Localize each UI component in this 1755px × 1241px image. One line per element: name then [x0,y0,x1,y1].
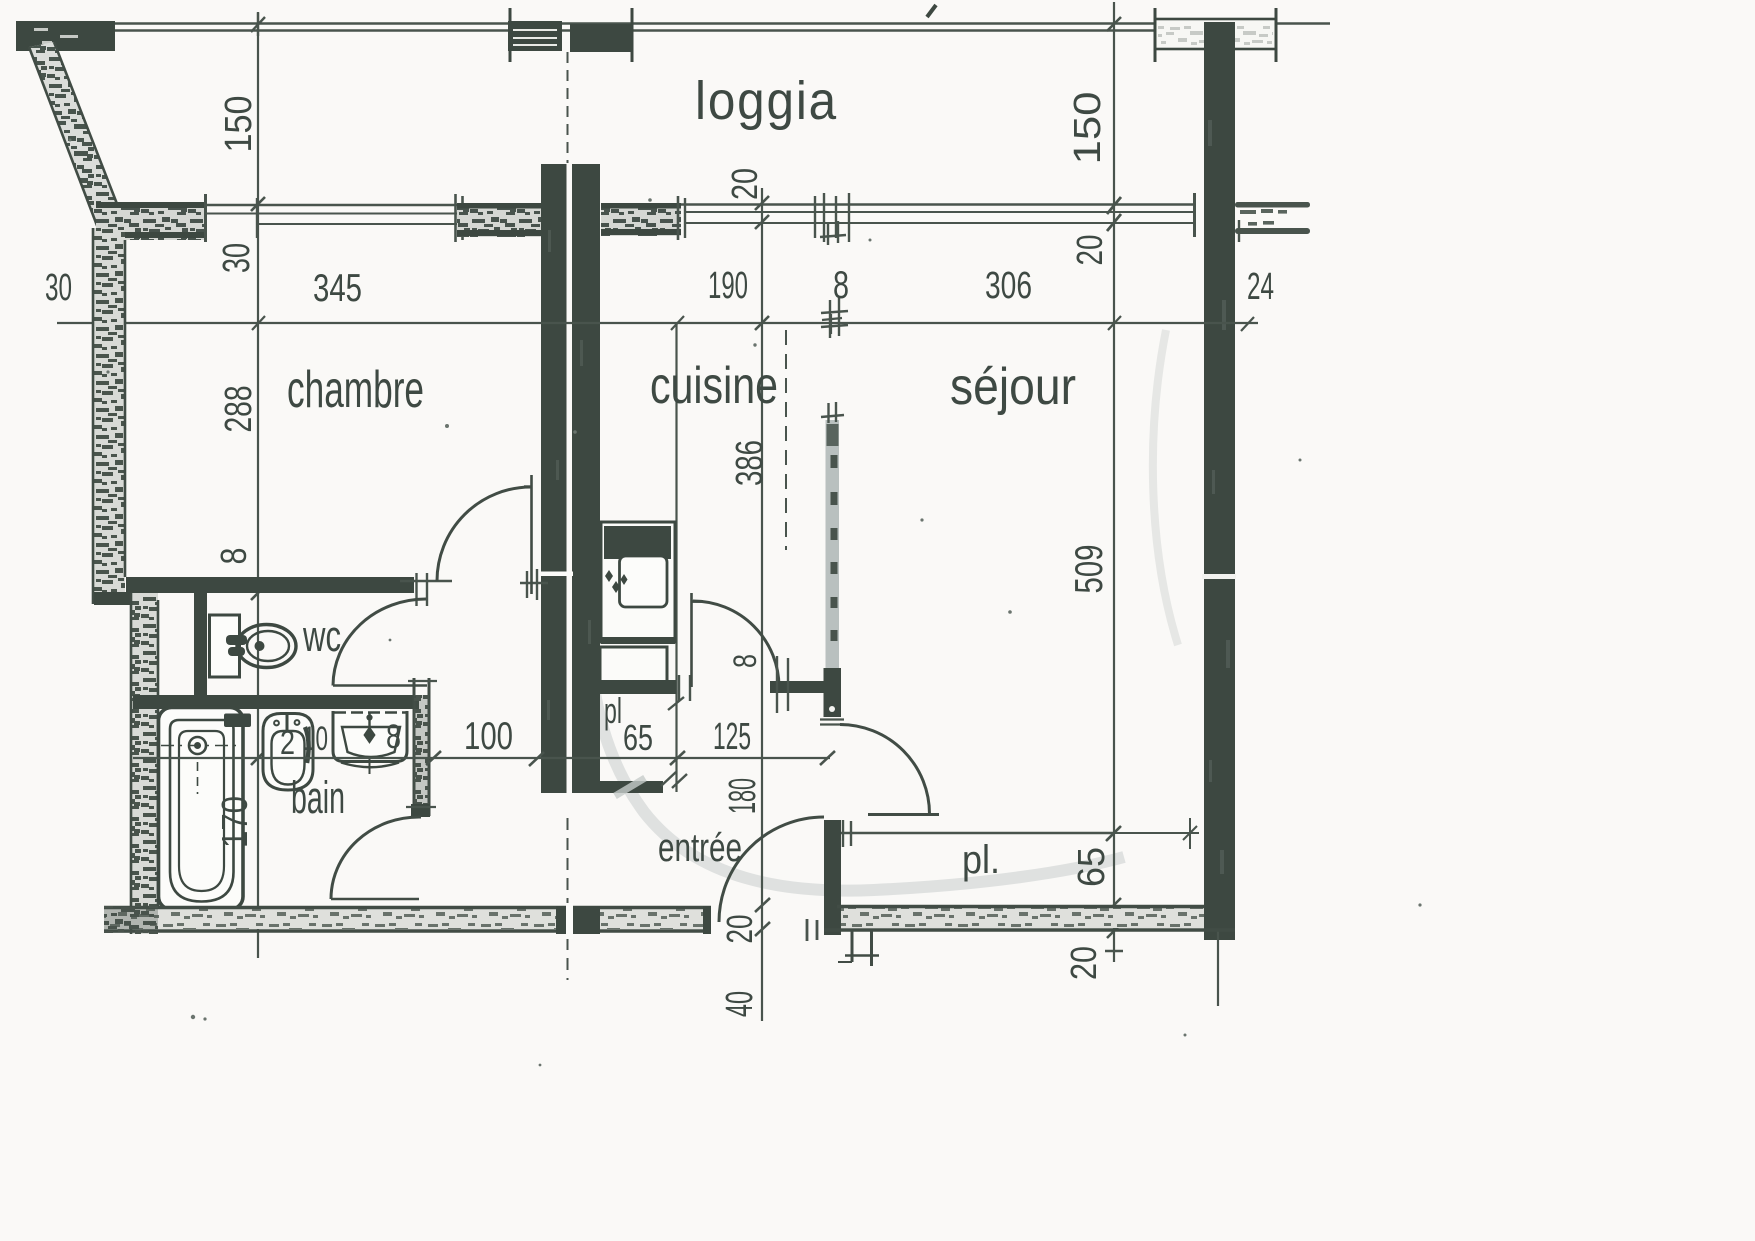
svg-text:8: 8 [727,654,763,668]
svg-text:bain: bain [291,772,345,823]
svg-text:150: 150 [218,96,260,153]
svg-text:entrée: entrée [658,826,742,870]
svg-text:65: 65 [623,717,653,758]
svg-text:30: 30 [216,243,258,273]
svg-text:wc: wc [302,612,341,661]
svg-text:509: 509 [1068,545,1111,594]
svg-text:386: 386 [729,440,771,486]
svg-text:pl: pl [604,690,622,731]
svg-text:20: 20 [1063,946,1104,980]
svg-text:8: 8 [833,264,849,307]
svg-text:loggia: loggia [695,71,838,131]
svg-text:190: 190 [708,265,748,307]
svg-text:20: 20 [724,168,765,200]
svg-text:8: 8 [386,718,401,756]
svg-text:40: 40 [719,991,761,1017]
svg-text:24: 24 [1247,266,1274,308]
svg-text:2: 2 [280,724,295,762]
svg-text:65: 65 [1071,847,1113,887]
svg-text:séjour: séjour [950,358,1076,416]
svg-text:cuisine: cuisine [650,357,778,415]
svg-text:306: 306 [985,265,1032,307]
svg-text:20: 20 [719,915,760,944]
svg-text:10: 10 [303,720,328,758]
svg-text:180: 180 [722,778,764,814]
svg-text:chambre: chambre [287,361,424,419]
svg-text:150: 150 [1067,92,1109,165]
svg-text:100: 100 [464,715,513,758]
svg-text:345: 345 [313,267,362,310]
svg-text:20: 20 [1069,235,1110,266]
svg-text:8: 8 [213,548,254,565]
svg-text:30: 30 [45,267,72,309]
svg-text:pl.: pl. [962,838,1000,882]
svg-text:125: 125 [713,716,751,758]
svg-text:288: 288 [218,386,260,433]
svg-text:170: 170 [214,796,255,848]
